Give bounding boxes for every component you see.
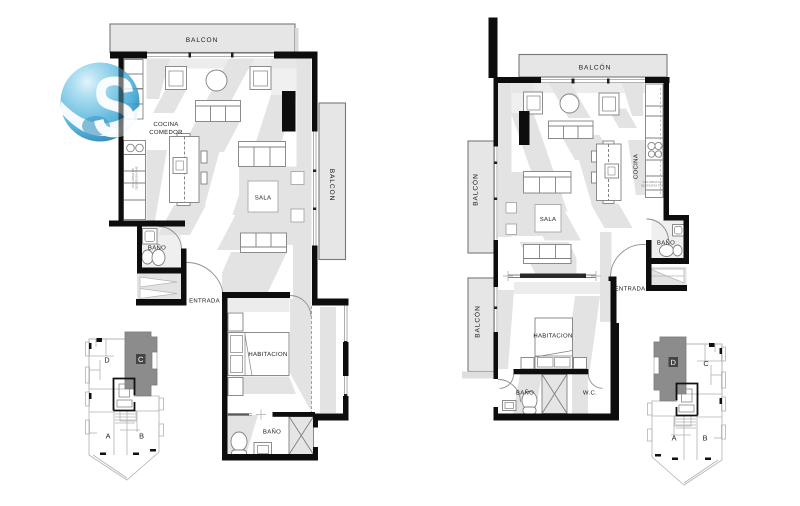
svg-text:DESPENSA CHE: DESPENSA CHE bbox=[641, 184, 664, 188]
svg-text:BAÑO: BAÑO bbox=[516, 389, 534, 397]
svg-text:DESPENSA CHE: DESPENSA CHE bbox=[135, 166, 139, 189]
svg-text:C: C bbox=[703, 359, 708, 368]
svg-text:B: B bbox=[139, 432, 144, 441]
svg-text:BALCON: BALCON bbox=[328, 169, 335, 202]
svg-text:COMEDOR: COMEDOR bbox=[149, 129, 183, 136]
svg-text:W.C.: W.C. bbox=[583, 390, 597, 397]
svg-text:BALCÓN: BALCÓN bbox=[474, 305, 482, 338]
svg-text:BALCÓN: BALCÓN bbox=[472, 173, 480, 206]
svg-text:COCINA: COCINA bbox=[153, 121, 178, 128]
svg-text:BAÑO: BAÑO bbox=[148, 244, 166, 252]
svg-text:D: D bbox=[670, 358, 676, 367]
svg-text:S: S bbox=[92, 60, 137, 156]
svg-text:BALCÓN: BALCÓN bbox=[579, 64, 612, 72]
svg-text:A: A bbox=[106, 432, 111, 441]
svg-text:BAÑO: BAÑO bbox=[263, 428, 281, 436]
svg-text:BALCON: BALCON bbox=[186, 37, 219, 44]
svg-text:HABITACION: HABITACION bbox=[533, 333, 572, 340]
svg-text:COCINA: COCINA bbox=[633, 154, 640, 179]
svg-text:A: A bbox=[672, 434, 677, 443]
svg-text:ENTRADA: ENTRADA bbox=[615, 286, 646, 293]
svg-text:HABITACION: HABITACION bbox=[248, 351, 287, 358]
svg-text:SALA: SALA bbox=[540, 216, 557, 223]
svg-text:BAÑO: BAÑO bbox=[657, 239, 675, 247]
svg-text:SALA: SALA bbox=[255, 195, 272, 202]
svg-text:B: B bbox=[703, 434, 708, 443]
svg-text:C: C bbox=[138, 355, 144, 364]
svg-text:D: D bbox=[104, 356, 109, 365]
svg-text:ENTRADA: ENTRADA bbox=[189, 298, 220, 305]
